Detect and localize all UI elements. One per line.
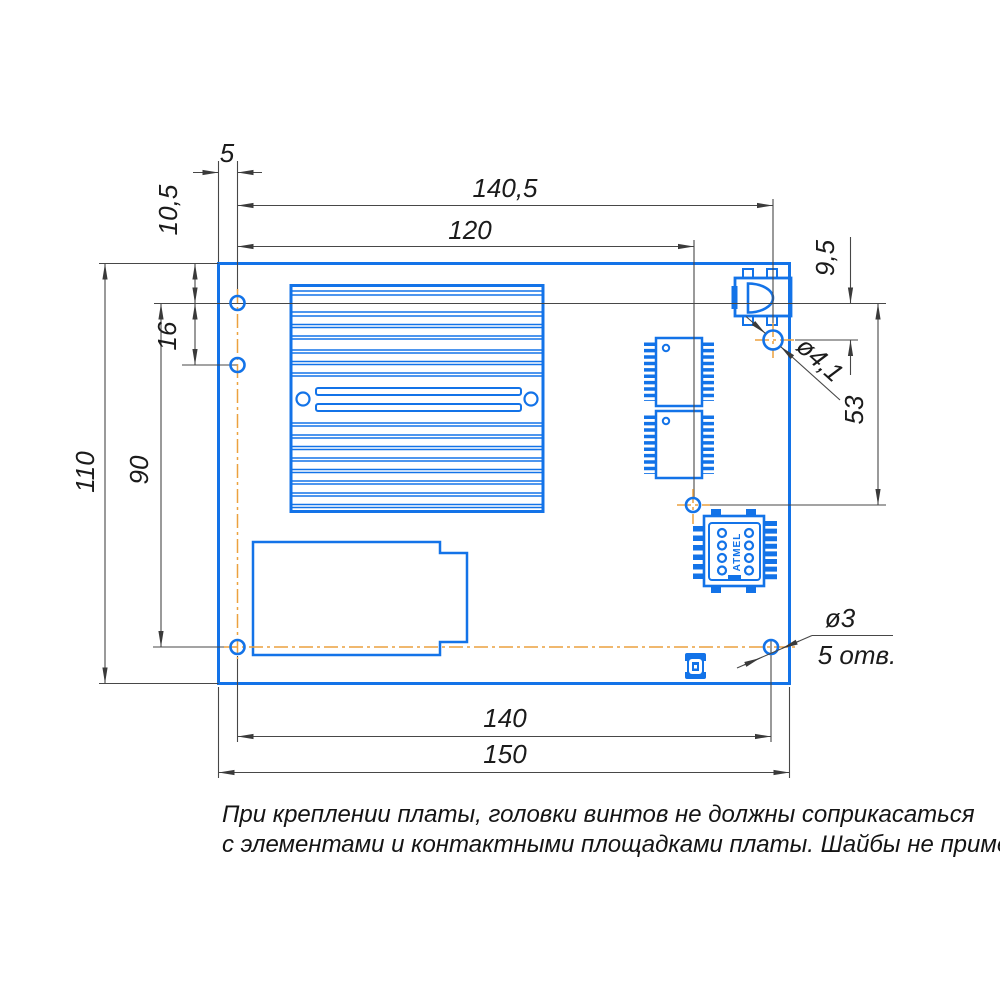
- bottom-left-module: [253, 542, 467, 655]
- ic-chip-2: [650, 411, 708, 478]
- sim-bottom-bar: [728, 575, 741, 580]
- heatsink-slot-upper: [316, 388, 521, 395]
- dim-label-5: 5: [220, 138, 235, 168]
- module-outline: [253, 542, 467, 655]
- dim-label-53: 53: [839, 395, 869, 424]
- dim-label-10-5: 10,5: [153, 184, 183, 235]
- sim-chip-label: ATMEL: [732, 533, 743, 572]
- heatsink-body: [291, 286, 543, 512]
- ic1-pin1-mark: [663, 345, 669, 351]
- heatsink-screw-left: [297, 393, 310, 406]
- drawing-note: При креплении платы, головки винтов не д…: [222, 801, 1000, 858]
- drawing-canvas: ATMEL: [0, 0, 1000, 1000]
- sim-card-holder: ATMEL: [698, 509, 771, 593]
- heatsink: [291, 286, 543, 512]
- dim-label-dia-4-1: ø4,1: [791, 331, 850, 388]
- technical-drawing: ATMEL: [0, 0, 1000, 1000]
- heatsink-fins-bottom: [292, 423, 542, 508]
- heatsink-slot-lower: [316, 404, 521, 411]
- ic2-pin1-mark: [663, 418, 669, 424]
- dim-label-140: 140: [483, 703, 527, 733]
- button-core-dot: [694, 665, 697, 669]
- dimension-labels: 5 140,5 120 110 90 10,5 16 9,5 53 ø4,1 ø…: [70, 138, 896, 769]
- button-component: [683, 653, 708, 679]
- dim-label-150: 150: [483, 739, 527, 769]
- connector-left-bar: [732, 286, 738, 309]
- dim-label-16: 16: [152, 321, 182, 350]
- dim-label-9-5: 9,5: [810, 239, 840, 276]
- button-notch-right: [704, 661, 708, 672]
- dim-label-140-5: 140,5: [472, 173, 538, 203]
- connector-barrel: [748, 284, 773, 313]
- power-connector: [732, 269, 792, 325]
- dim-label-dia-3: ø3: [825, 603, 856, 633]
- heatsink-screw-right: [525, 393, 538, 406]
- note-line-1: При креплении платы, головки винтов не д…: [222, 801, 975, 828]
- dim-label-90: 90: [124, 455, 154, 484]
- note-line-2: с элементами и контактными площадками пл…: [222, 831, 1000, 858]
- dim-label-110: 110: [70, 451, 100, 493]
- dim-label-120: 120: [448, 215, 492, 245]
- ic-chip-1: [650, 338, 708, 406]
- dim-label-hole-count: 5 отв.: [818, 640, 897, 670]
- button-notch-left: [683, 661, 687, 672]
